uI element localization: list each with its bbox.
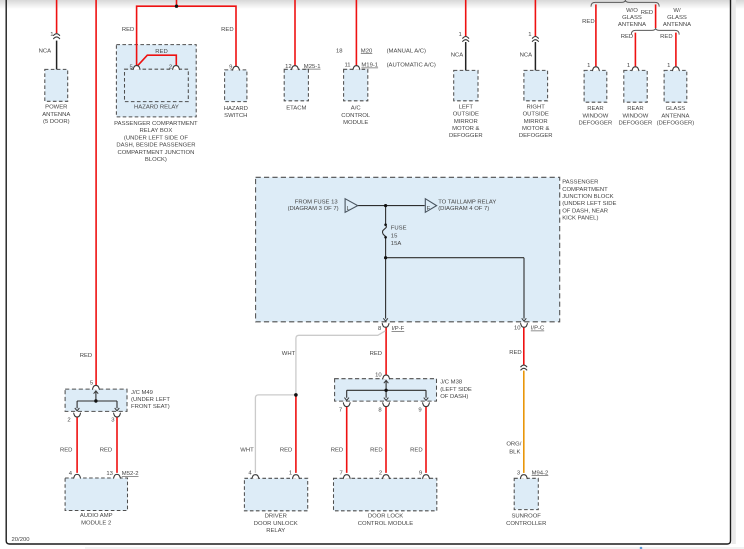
- svg-text:HAZARD RELAY: HAZARD RELAY: [134, 104, 179, 110]
- svg-text:GLASS: GLASS: [667, 15, 687, 21]
- svg-text:12: 12: [285, 64, 292, 70]
- svg-text:(UNDER LEFT SIDE: (UNDER LEFT SIDE: [562, 201, 616, 207]
- svg-text:SUNROOF: SUNROOF: [511, 514, 541, 520]
- svg-text:ANTENNA: ANTENNA: [661, 113, 689, 119]
- svg-text:MODULE 2: MODULE 2: [81, 520, 111, 526]
- svg-text:RED: RED: [370, 351, 382, 357]
- svg-text:9: 9: [229, 65, 232, 71]
- svg-text:NCA: NCA: [520, 52, 533, 58]
- svg-text:J/C M49: J/C M49: [131, 390, 153, 396]
- svg-text:OUTSIDE: OUTSIDE: [453, 112, 479, 118]
- svg-text:RED: RED: [370, 447, 382, 453]
- svg-text:CONTROL: CONTROL: [341, 113, 371, 119]
- svg-text:RED: RED: [100, 447, 112, 453]
- svg-text:OF DASH): OF DASH): [440, 394, 468, 400]
- svg-text:NCA: NCA: [39, 48, 52, 54]
- svg-text:LEFT: LEFT: [459, 104, 474, 110]
- svg-text:DOOR UNLOCK: DOOR UNLOCK: [254, 521, 298, 527]
- svg-text:JUNCTION BLOCK: JUNCTION BLOCK: [562, 194, 613, 200]
- svg-text:(LEFT SIDE: (LEFT SIDE: [440, 387, 472, 393]
- svg-text:7: 7: [340, 470, 343, 476]
- svg-text:M19-1: M19-1: [361, 63, 378, 69]
- svg-text:GLASS: GLASS: [666, 106, 686, 112]
- svg-text:1: 1: [587, 63, 590, 69]
- svg-text:RED: RED: [621, 34, 633, 40]
- svg-text:J/C M38: J/C M38: [440, 380, 463, 386]
- svg-text:(AUTOMATIC A/C): (AUTOMATIC A/C): [387, 63, 436, 69]
- svg-text:HAZARD: HAZARD: [224, 106, 248, 112]
- svg-text:COMPARTMENT: COMPARTMENT: [562, 187, 608, 193]
- svg-text:FRONT SEAT): FRONT SEAT): [131, 404, 170, 410]
- svg-text:(DIAGRAM 3 OF 7): (DIAGRAM 3 OF 7): [288, 206, 339, 212]
- svg-text:WINDOW: WINDOW: [582, 113, 608, 119]
- svg-text:10: 10: [375, 373, 382, 379]
- svg-text:PASSENGER: PASSENGER: [562, 180, 598, 186]
- svg-text:DRIVER: DRIVER: [265, 514, 287, 520]
- svg-text:DEFOGGER: DEFOGGER: [519, 133, 553, 139]
- svg-text:RED: RED: [280, 447, 292, 453]
- svg-text:RED: RED: [660, 34, 672, 40]
- svg-text:FUSE: FUSE: [391, 225, 407, 231]
- svg-text:7: 7: [339, 407, 342, 413]
- svg-text:CONTROL MODULE: CONTROL MODULE: [358, 521, 413, 527]
- svg-text:WHT: WHT: [240, 447, 254, 453]
- svg-text:15: 15: [391, 233, 398, 239]
- svg-text:RIGHT: RIGHT: [527, 104, 546, 110]
- svg-text:1: 1: [289, 470, 292, 476]
- svg-text:BLK: BLK: [509, 450, 520, 456]
- svg-text:RED: RED: [331, 447, 343, 453]
- svg-text:DASH, BESIDE PASSENGER: DASH, BESIDE PASSENGER: [116, 143, 195, 149]
- svg-text:OF DASH, NEAR: OF DASH, NEAR: [562, 208, 608, 214]
- svg-text:BLOCK): BLOCK): [145, 157, 167, 163]
- svg-text:(DIAGRAM 4 OF 7): (DIAGRAM 4 OF 7): [438, 206, 489, 212]
- svg-text:RED: RED: [582, 19, 594, 25]
- svg-text:M25-1: M25-1: [304, 64, 321, 70]
- svg-text:(MANUAL A/C): (MANUAL A/C): [387, 48, 426, 54]
- svg-text:2: 2: [67, 417, 70, 423]
- svg-text:(DEFOGGER): (DEFOGGER): [657, 121, 695, 127]
- svg-text:GLASS: GLASS: [622, 15, 642, 21]
- svg-text:(UNDER LEFT SIDE OF: (UNDER LEFT SIDE OF: [124, 135, 188, 141]
- svg-text:TO TAILLAMP RELAY: TO TAILLAMP RELAY: [438, 199, 496, 205]
- svg-text:(UNDER LEFT: (UNDER LEFT: [131, 397, 170, 403]
- svg-text:REAR: REAR: [587, 106, 603, 112]
- svg-text:I/P-F: I/P-F: [392, 326, 405, 332]
- svg-text:NCA: NCA: [451, 52, 464, 58]
- svg-text:AUDIO AMP: AUDIO AMP: [80, 513, 113, 519]
- svg-text:RED: RED: [410, 447, 422, 453]
- svg-text:10: 10: [514, 326, 521, 332]
- svg-text:KICK PANEL): KICK PANEL): [562, 216, 598, 222]
- svg-text:PASSENGER COMPARTMENT: PASSENGER COMPARTMENT: [114, 121, 198, 127]
- svg-text:CONTROLLER: CONTROLLER: [506, 521, 546, 527]
- svg-text:RED: RED: [221, 27, 233, 33]
- svg-text:RED: RED: [80, 353, 92, 359]
- svg-text:W/O: W/O: [626, 8, 638, 14]
- svg-text:MOTOR &: MOTOR &: [522, 126, 549, 132]
- svg-text:1: 1: [627, 63, 630, 69]
- svg-text:11: 11: [344, 63, 350, 69]
- svg-text:9: 9: [419, 470, 422, 476]
- svg-text:9: 9: [418, 407, 421, 413]
- svg-text:SWITCH: SWITCH: [224, 113, 247, 119]
- svg-text:1: 1: [459, 32, 462, 38]
- svg-text:I/P-C: I/P-C: [531, 326, 545, 332]
- svg-text:ANTENNA: ANTENNA: [42, 112, 70, 118]
- svg-text:RED: RED: [641, 10, 653, 16]
- svg-text:WINDOW: WINDOW: [622, 113, 648, 119]
- svg-text:15A: 15A: [391, 241, 402, 247]
- svg-text:FROM FUSE 13: FROM FUSE 13: [295, 199, 339, 205]
- svg-text:2: 2: [379, 470, 382, 476]
- svg-text:W/: W/: [673, 8, 681, 14]
- svg-text:RED: RED: [60, 447, 72, 453]
- svg-text:OUTSIDE: OUTSIDE: [523, 112, 549, 118]
- svg-text:2: 2: [169, 65, 172, 71]
- svg-text:18: 18: [336, 48, 343, 54]
- svg-text:DEFOGGER: DEFOGGER: [449, 133, 483, 139]
- svg-text:1: 1: [528, 32, 531, 38]
- svg-text:DEFOGGER: DEFOGGER: [579, 121, 613, 127]
- svg-text:ORG/: ORG/: [506, 442, 521, 448]
- svg-text:RELAY BOX: RELAY BOX: [139, 128, 172, 134]
- svg-text:M94-2: M94-2: [532, 470, 549, 476]
- svg-text:ANTENNA: ANTENNA: [618, 22, 646, 28]
- svg-text:13: 13: [106, 471, 113, 477]
- svg-text:MODULE: MODULE: [343, 120, 368, 126]
- svg-text:1: 1: [667, 63, 670, 69]
- svg-text:A/C: A/C: [351, 106, 362, 112]
- svg-text:M20: M20: [361, 48, 373, 54]
- svg-text:RED: RED: [509, 350, 521, 356]
- svg-text:F: F: [427, 206, 431, 212]
- svg-text:ANTENNA: ANTENNA: [663, 22, 691, 28]
- svg-text:COMPARTMENT JUNCTION: COMPARTMENT JUNCTION: [117, 150, 194, 156]
- svg-text:M52-2: M52-2: [122, 471, 139, 477]
- svg-text:MOTOR &: MOTOR &: [452, 126, 479, 132]
- svg-text:RED: RED: [122, 27, 134, 33]
- svg-text:(5 DOOR): (5 DOOR): [43, 119, 70, 125]
- svg-text:RELAY: RELAY: [266, 528, 285, 534]
- svg-text:DOOR LOCK: DOOR LOCK: [368, 514, 403, 520]
- svg-text:REAR: REAR: [627, 106, 643, 112]
- svg-text:DEFOGGER: DEFOGGER: [619, 121, 653, 127]
- svg-text:POWER: POWER: [45, 105, 67, 111]
- svg-text:MIRROR: MIRROR: [454, 119, 478, 125]
- svg-text:ETACM: ETACM: [286, 106, 306, 112]
- svg-text:WHT: WHT: [282, 351, 296, 357]
- svg-text:MIRROR: MIRROR: [524, 119, 548, 125]
- svg-text:1: 1: [50, 32, 53, 38]
- svg-text:20/200: 20/200: [12, 537, 31, 543]
- svg-text:RED: RED: [155, 49, 167, 55]
